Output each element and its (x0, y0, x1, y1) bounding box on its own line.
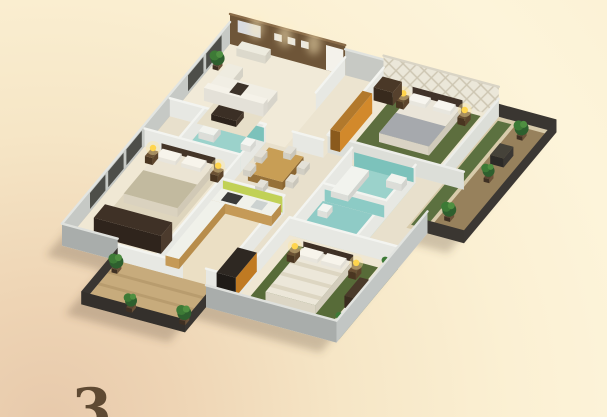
spotlight-glow (249, 17, 263, 39)
isometric-floor-plan (0, 0, 607, 417)
caption-digit: 3 (72, 381, 112, 417)
spotlight-glow (278, 25, 292, 47)
floor-plan-image: 3 (0, 0, 607, 417)
spotlight-glow (307, 33, 321, 55)
